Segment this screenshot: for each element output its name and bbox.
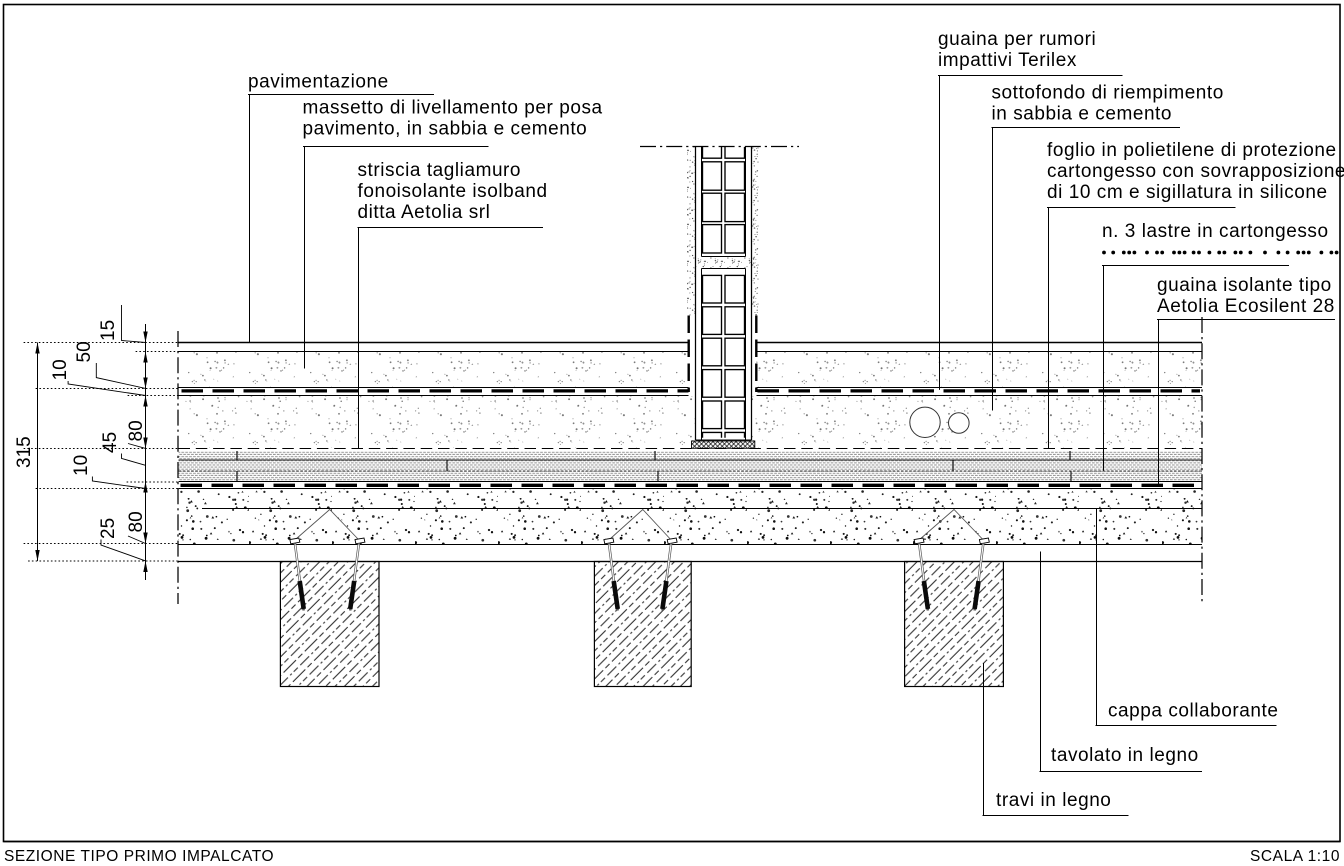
svg-text:10: 10 [71, 455, 92, 476]
svg-text:sottofondo di riempimento: sottofondo di riempimento [992, 83, 1224, 104]
svg-text:25: 25 [98, 518, 119, 539]
svg-text:pavimento, in sabbia e cemento: pavimento, in sabbia e cemento [303, 119, 588, 140]
svg-text:di 10 cm e sigillatura in sili: di 10 cm e sigillatura in silicone [1047, 182, 1328, 203]
svg-text:80: 80 [126, 511, 147, 532]
svg-text:travi in legno: travi in legno [996, 790, 1111, 811]
svg-text:cartongesso con sovrapposizion: cartongesso con sovrapposizione [1047, 161, 1344, 182]
svg-text:SCALA 1:10: SCALA 1:10 [1250, 848, 1340, 865]
svg-text:guaina isolante tipo: guaina isolante tipo [1157, 275, 1332, 296]
svg-text:10: 10 [50, 359, 71, 380]
svg-text:45: 45 [100, 432, 121, 453]
svg-text:315: 315 [14, 436, 35, 468]
svg-text:massetto di livellamento per p: massetto di livellamento per posa [303, 98, 603, 119]
svg-text:ditta Aetolia srl: ditta Aetolia srl [358, 202, 491, 223]
svg-text:80: 80 [126, 420, 147, 441]
svg-text:tavolato in legno: tavolato in legno [1051, 745, 1199, 766]
svg-text:15: 15 [98, 320, 119, 341]
svg-text:fonoisolante isolband: fonoisolante isolband [358, 181, 548, 202]
svg-text:SEZIONE TIPO PRIMO IMPALCATO: SEZIONE TIPO PRIMO IMPALCATO [4, 848, 274, 865]
svg-text:foglio in polietilene di prote: foglio in polietilene di protezione [1047, 140, 1337, 161]
svg-text:in sabbia e cemento: in sabbia e cemento [992, 104, 1173, 125]
svg-text:striscia tagliamuro: striscia tagliamuro [358, 160, 522, 181]
svg-text:pavimentazione: pavimentazione [248, 72, 389, 93]
svg-text:cappa collaborante: cappa collaborante [1108, 701, 1278, 722]
svg-text:50: 50 [74, 341, 95, 362]
svg-text:Aetolia Ecosilent 28: Aetolia Ecosilent 28 [1157, 296, 1335, 317]
svg-text:n. 3 lastre in cartongesso: n. 3 lastre in cartongesso [1102, 221, 1329, 242]
svg-text:guaina per rumori: guaina per rumori [938, 29, 1096, 50]
svg-text:impattivi Terilex: impattivi Terilex [938, 50, 1077, 71]
